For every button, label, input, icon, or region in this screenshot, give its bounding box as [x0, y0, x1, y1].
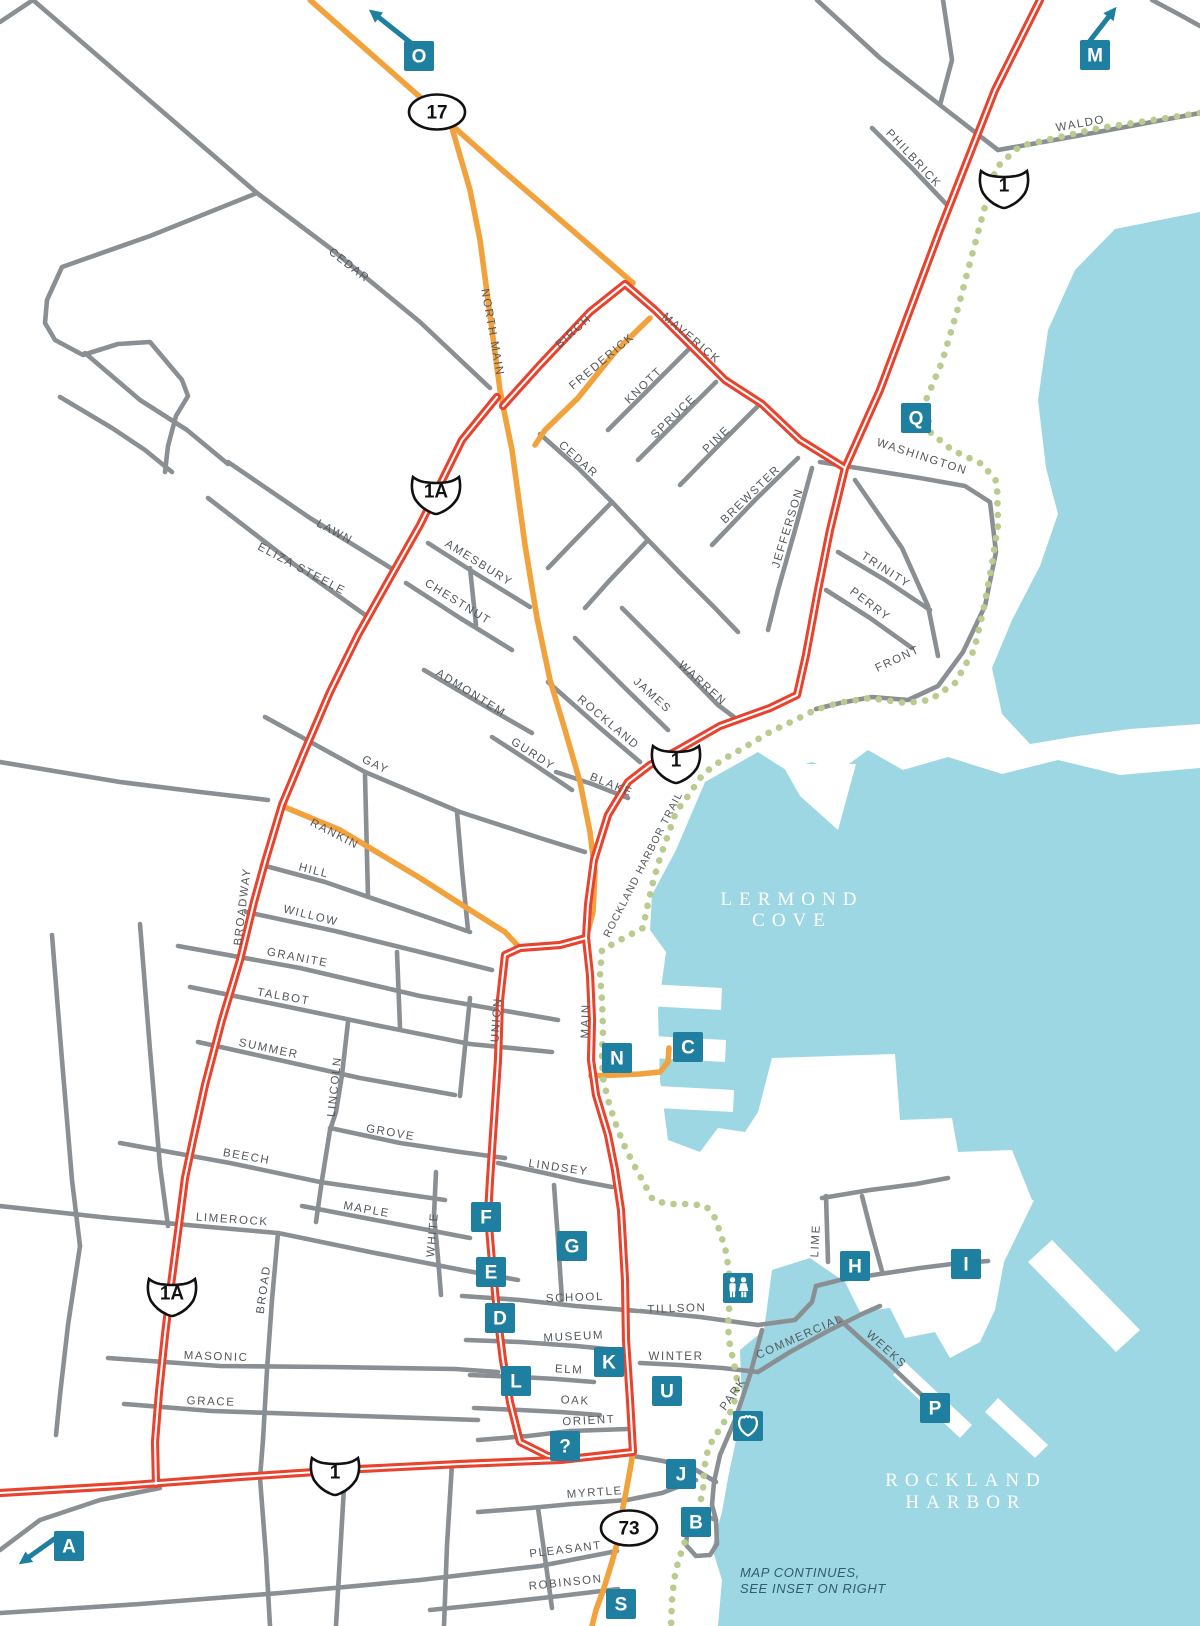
road-beech-street — [120, 1143, 445, 1200]
rockland-harbor-label-line2: HARBOR — [905, 1492, 1026, 1513]
street-label-rankin: RANKIN — [308, 817, 361, 852]
marker-letter-h: H — [848, 1257, 862, 1278]
map-marker-u[interactable]: U — [652, 1376, 682, 1406]
pier-or-landmass — [657, 1086, 734, 1112]
street-label-main: MAIN — [579, 1003, 592, 1039]
road-summer-street — [198, 1042, 455, 1095]
restroom-male-leg — [733, 1292, 735, 1298]
street-label-birch: BIRCH — [554, 313, 595, 351]
route-shield-1a: 1A — [148, 1279, 196, 1316]
marker-letter-u: U — [660, 1382, 674, 1403]
map-marker-k[interactable]: K — [594, 1347, 624, 1377]
marker-letter-g: G — [565, 1237, 580, 1258]
route-shield-number: 73 — [618, 1519, 639, 1540]
road-cedar-street — [540, 434, 738, 632]
road-street — [52, 935, 80, 1246]
route-shield-number: 17 — [426, 103, 447, 124]
route-shield-number: 1 — [999, 176, 1010, 197]
road-street — [56, 1246, 80, 1435]
road-street — [260, 1478, 270, 1626]
street-label-eliza-steele: ELIZA STEELE — [255, 541, 347, 598]
road-street — [822, 1178, 948, 1198]
marker-letter-m: M — [1087, 46, 1103, 67]
street-label-amesbury: AMESBURY — [443, 538, 515, 589]
street-label-winter: WINTER — [649, 1351, 704, 1363]
offmap-arrow-o-line — [379, 18, 411, 43]
route-shield-73: 73 — [601, 1511, 657, 1546]
road-oak-street — [474, 1408, 600, 1415]
street-label-north-main: NORTH MAIN — [478, 288, 505, 377]
restroom-male-leg — [730, 1292, 732, 1298]
street-label-school: SCHOOL — [546, 1291, 605, 1305]
route-shield-1: 1 — [311, 1458, 359, 1495]
restroom-male-body — [729, 1283, 735, 1291]
marker-letter-k: K — [602, 1353, 616, 1374]
road-lincoln-street — [316, 1022, 348, 1222]
map-marker-s[interactable]: S — [606, 1589, 636, 1619]
road-street — [1152, 0, 1200, 26]
road-street — [585, 540, 648, 608]
map-marker-i[interactable]: I — [951, 1249, 981, 1279]
restroom-icon-box — [723, 1273, 753, 1303]
street-label-tillson: TILLSON — [647, 1302, 707, 1316]
street-label-orient: ORIENT — [562, 1414, 616, 1429]
route-shield-1: 1 — [652, 746, 700, 783]
marker-letter-f: F — [480, 1208, 492, 1229]
street-label-warren: WARREN — [676, 659, 729, 708]
map-marker-l[interactable]: L — [501, 1366, 531, 1396]
street-label-lawn: LAWN — [314, 518, 354, 547]
restroom-male-head — [730, 1277, 735, 1282]
marker-letter-q: Q — [909, 409, 924, 430]
road-street — [548, 502, 612, 568]
rockland-harbor-label-line1: ROCKLAND — [885, 1470, 1047, 1491]
route-shield-number: 1A — [160, 1284, 185, 1305]
street-label-pine: PINE — [701, 424, 733, 456]
water-body — [992, 212, 1200, 744]
map-canvas: CEDARNORTH MAINBIRCHFREDERICKMAVERICKKNO… — [0, 0, 1200, 1626]
map-marker-p[interactable]: P — [920, 1393, 950, 1423]
street-label-james: JAMES — [631, 676, 673, 716]
road-chestnut-street — [406, 583, 512, 650]
route-shield-1: 1 — [980, 171, 1028, 208]
road-street — [85, 353, 228, 464]
marker-letter-j: J — [676, 1465, 687, 1486]
map-marker-g[interactable]: G — [557, 1231, 587, 1261]
road-centerline-route-1a-broadway — [155, 397, 497, 1484]
road-lawn-street — [228, 462, 394, 570]
map-marker-o[interactable]: O — [404, 41, 434, 71]
street-label-frederick: FREDERICK — [567, 331, 637, 392]
route-shield-1a: 1A — [412, 477, 460, 514]
map-continues-note-line1: MAP CONTINUES, — [740, 1565, 860, 1580]
road-masonic-street — [108, 1358, 498, 1372]
map-marker-question[interactable]: ? — [550, 1431, 580, 1461]
street-label-cedar: CEDAR — [556, 439, 600, 480]
marker-letter-e: E — [485, 1263, 498, 1284]
street-label-lime: LIME — [809, 1224, 823, 1258]
road-birch-maverick-road — [503, 284, 845, 468]
map-marker-f[interactable]: F — [471, 1202, 501, 1232]
offmap-arrow-a-line — [29, 1537, 57, 1557]
route-shield-17: 17 — [409, 95, 465, 130]
road-grove-street — [330, 1128, 505, 1158]
road-route-17-road — [310, 0, 633, 283]
marker-letter-a: A — [62, 1537, 76, 1558]
street-label-museum: MUSEUM — [543, 1329, 604, 1344]
street-label-rockland: ROCKLAND — [575, 693, 641, 751]
marker-letter-o: O — [412, 47, 427, 68]
road-street — [940, 0, 952, 105]
road-pleasant-street — [0, 1551, 617, 1613]
street-label-philbrick: PHILBRICK — [883, 127, 943, 190]
street-label-brewster: BREWSTER — [719, 463, 783, 526]
road-gurdy-street — [492, 737, 572, 790]
route-shield-number: 1 — [330, 1463, 341, 1484]
street-label-cedar: CEDAR — [326, 246, 371, 285]
marker-letter-n: N — [610, 1049, 624, 1070]
marker-letter-question: ? — [559, 1437, 571, 1458]
restroom-female-leg — [744, 1292, 746, 1298]
map-marker-c[interactable]: C — [673, 1032, 703, 1062]
marker-letter-d: D — [493, 1309, 507, 1330]
road-street — [0, 762, 268, 800]
road-street — [444, 1464, 452, 1626]
lermond-cove-label-line1: LERMOND — [721, 889, 864, 910]
street-label-myrtle: MYRTLE — [566, 1485, 623, 1501]
road-street — [140, 924, 168, 1226]
landmark-shield-icon[interactable] — [733, 1411, 763, 1441]
pier-or-landmass — [647, 984, 722, 1010]
offmap-arrow-m-line — [1089, 17, 1108, 42]
map-marker-m[interactable]: M — [1080, 40, 1110, 70]
road-robinson-street — [430, 1589, 618, 1610]
map-marker-b[interactable]: B — [681, 1507, 711, 1537]
restroom-icon[interactable] — [723, 1273, 753, 1303]
map-marker-h[interactable]: H — [840, 1251, 870, 1281]
street-label-masonic: MASONIC — [183, 1350, 248, 1364]
road-street — [460, 998, 470, 1096]
street-label-elm: ELM — [555, 1363, 584, 1376]
marker-letter-s: S — [615, 1595, 628, 1616]
marker-letter-l: L — [510, 1372, 522, 1393]
map-continues-note-line2: SEE INSET ON RIGHT — [740, 1581, 886, 1596]
rockland-street-map: CEDARNORTH MAINBIRCHFREDERICKMAVERICKKNO… — [0, 0, 1200, 1626]
road-street — [45, 193, 257, 472]
map-marker-q[interactable]: Q — [901, 403, 931, 433]
road-route-1a-broadway — [155, 397, 497, 1484]
route-shield-number: 1 — [671, 751, 682, 772]
map-marker-e[interactable]: E — [476, 1257, 506, 1287]
lermond-cove-label-line2: COVE — [752, 910, 832, 931]
map-marker-n[interactable]: N — [602, 1043, 632, 1073]
street-label-oak: OAK — [560, 1394, 590, 1408]
route-shield-number: 1A — [424, 482, 449, 503]
water-body — [650, 750, 1200, 1205]
street-label-spruce: SPRUCE — [649, 393, 699, 442]
marker-letter-p: P — [929, 1399, 942, 1420]
street-label-grace: GRACE — [186, 1395, 235, 1409]
marker-letter-c: C — [681, 1038, 695, 1059]
road-street — [365, 775, 368, 897]
road-lime-street — [826, 1196, 828, 1262]
map-marker-j[interactable]: J — [666, 1459, 696, 1489]
marker-letter-i: I — [963, 1255, 968, 1276]
restroom-female-leg — [741, 1292, 743, 1298]
street-label-maverick: MAVERICK — [659, 311, 722, 366]
road-winter-street — [640, 1363, 758, 1372]
street-label-admontem: ADMONTEM — [434, 667, 508, 720]
marker-letter-b: B — [689, 1513, 703, 1534]
street-label-front: FRONT — [874, 644, 922, 675]
restroom-female-head — [741, 1277, 746, 1282]
road-grace-street — [124, 1404, 478, 1420]
street-label-knott: KNOTT — [623, 365, 665, 406]
road-centerline-birch-maverick-road — [503, 284, 845, 468]
road-philbrick-street — [872, 128, 950, 208]
map-marker-a[interactable]: A — [54, 1531, 84, 1561]
road-street — [817, 0, 998, 150]
road-street — [457, 812, 468, 930]
map-marker-d[interactable]: D — [485, 1303, 515, 1333]
